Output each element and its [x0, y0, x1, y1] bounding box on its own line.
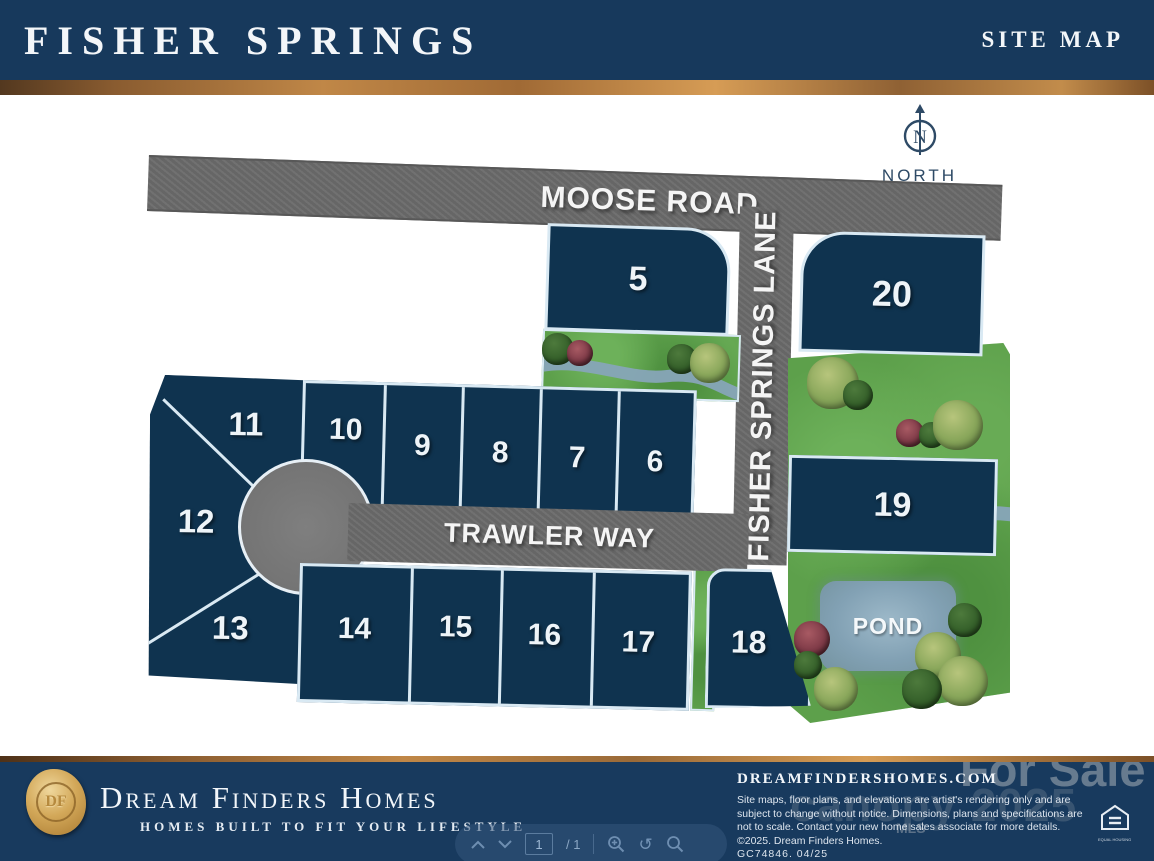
lot-boundary-line: [537, 389, 543, 510]
lot-19: 19: [787, 455, 998, 556]
tree-icon: [690, 343, 730, 383]
lot-13-number: 13: [212, 609, 249, 648]
page-title: SITE MAP: [981, 27, 1124, 53]
equal-housing-logo: EQUAL HOUSING: [1098, 804, 1131, 842]
site-map-page: FISHER SPRINGS SITE MAP N NORTH MOOSE RO…: [0, 0, 1154, 861]
lot-18-number: 18: [731, 624, 767, 662]
website-link[interactable]: DREAMFINDERSHOMES.COM: [737, 771, 998, 788]
lot-boundary-line: [498, 571, 504, 704]
lot-8-number: 8: [491, 436, 509, 470]
lot-boundary-line: [408, 569, 414, 702]
svg-text:N: N: [913, 127, 927, 148]
gold-divider: [0, 80, 1154, 95]
logo-monogram: DF: [36, 782, 76, 822]
lot-5-number: 5: [628, 260, 648, 300]
page-total-label: / 1: [566, 837, 580, 852]
lot-15-number: 15: [439, 610, 473, 645]
tree-icon: [948, 603, 982, 637]
lot-boundary-line: [590, 573, 596, 706]
license-number: GC74846. 04/25: [737, 848, 828, 860]
lot-12-number: 12: [177, 502, 214, 541]
page-number-input[interactable]: 1: [525, 833, 553, 855]
lots-14-to-17-row: 14 15 16 17: [297, 563, 692, 711]
dream-finders-seal-logo: DF: [26, 769, 86, 835]
pond-label: POND: [853, 613, 923, 640]
lot-20-number: 20: [871, 272, 912, 315]
lot-boundary-line: [459, 387, 465, 508]
lot-9-number: 9: [414, 429, 432, 463]
tree-icon: [567, 340, 593, 366]
site-plan-map: N NORTH MOOSE ROAD FISHER SPRINGS LANE P…: [0, 95, 1154, 756]
north-indicator: N NORTH: [872, 103, 967, 186]
rotate-icon[interactable]: ↺: [638, 836, 652, 853]
header: FISHER SPRINGS SITE MAP: [0, 0, 1154, 80]
lot-boundary-line: [381, 385, 387, 506]
lot-6-number: 6: [646, 445, 664, 479]
road-fisher-label: FISHER SPRINGS LANE: [743, 210, 783, 562]
legal-disclaimer: Site maps, floor plans, and elevations a…: [737, 794, 1089, 848]
tree-icon: [938, 656, 988, 706]
lot-19-number: 19: [873, 486, 912, 526]
lot-14-number: 14: [337, 612, 371, 647]
tree-icon: [843, 380, 873, 410]
lot-7-number: 7: [568, 441, 586, 475]
lot-10-number: 10: [329, 413, 363, 448]
equal-housing-icon: [1100, 804, 1130, 831]
lot-20: 20: [798, 231, 985, 357]
lot-16-number: 16: [527, 618, 561, 653]
lot-5: 5: [544, 223, 731, 336]
tree-icon: [933, 400, 983, 450]
gold-divider: [0, 756, 1154, 762]
next-page-icon[interactable]: [498, 840, 512, 849]
zoom-in-icon[interactable]: [607, 835, 625, 853]
lot-17-number: 17: [621, 625, 655, 660]
pdf-toolbar: 1 / 1 ↺: [455, 824, 727, 861]
equal-housing-caption: EQUAL HOUSING: [1098, 837, 1131, 842]
previous-page-icon[interactable]: [471, 840, 485, 849]
road-trawler-label: TRAWLER WAY: [444, 518, 656, 555]
toolbar-divider: [593, 834, 594, 854]
footer: For Sale canopy 2025 MLS DF Dream Finder…: [0, 756, 1154, 861]
tree-icon: [814, 667, 858, 711]
road-fisher-springs-lane: FISHER SPRINGS LANE: [733, 206, 794, 565]
brand-name: Dream Finders Homes: [100, 780, 439, 816]
north-arrow-icon: N: [896, 103, 944, 159]
lot-boundary-line: [615, 391, 621, 512]
tree-icon: [902, 669, 942, 709]
road-trawler-way: TRAWLER WAY: [347, 503, 748, 572]
lot-11-number: 11: [228, 405, 264, 444]
community-title: FISHER SPRINGS: [24, 17, 482, 64]
road-moose-label: MOOSE ROAD: [540, 181, 759, 223]
search-icon[interactable]: [666, 835, 684, 853]
